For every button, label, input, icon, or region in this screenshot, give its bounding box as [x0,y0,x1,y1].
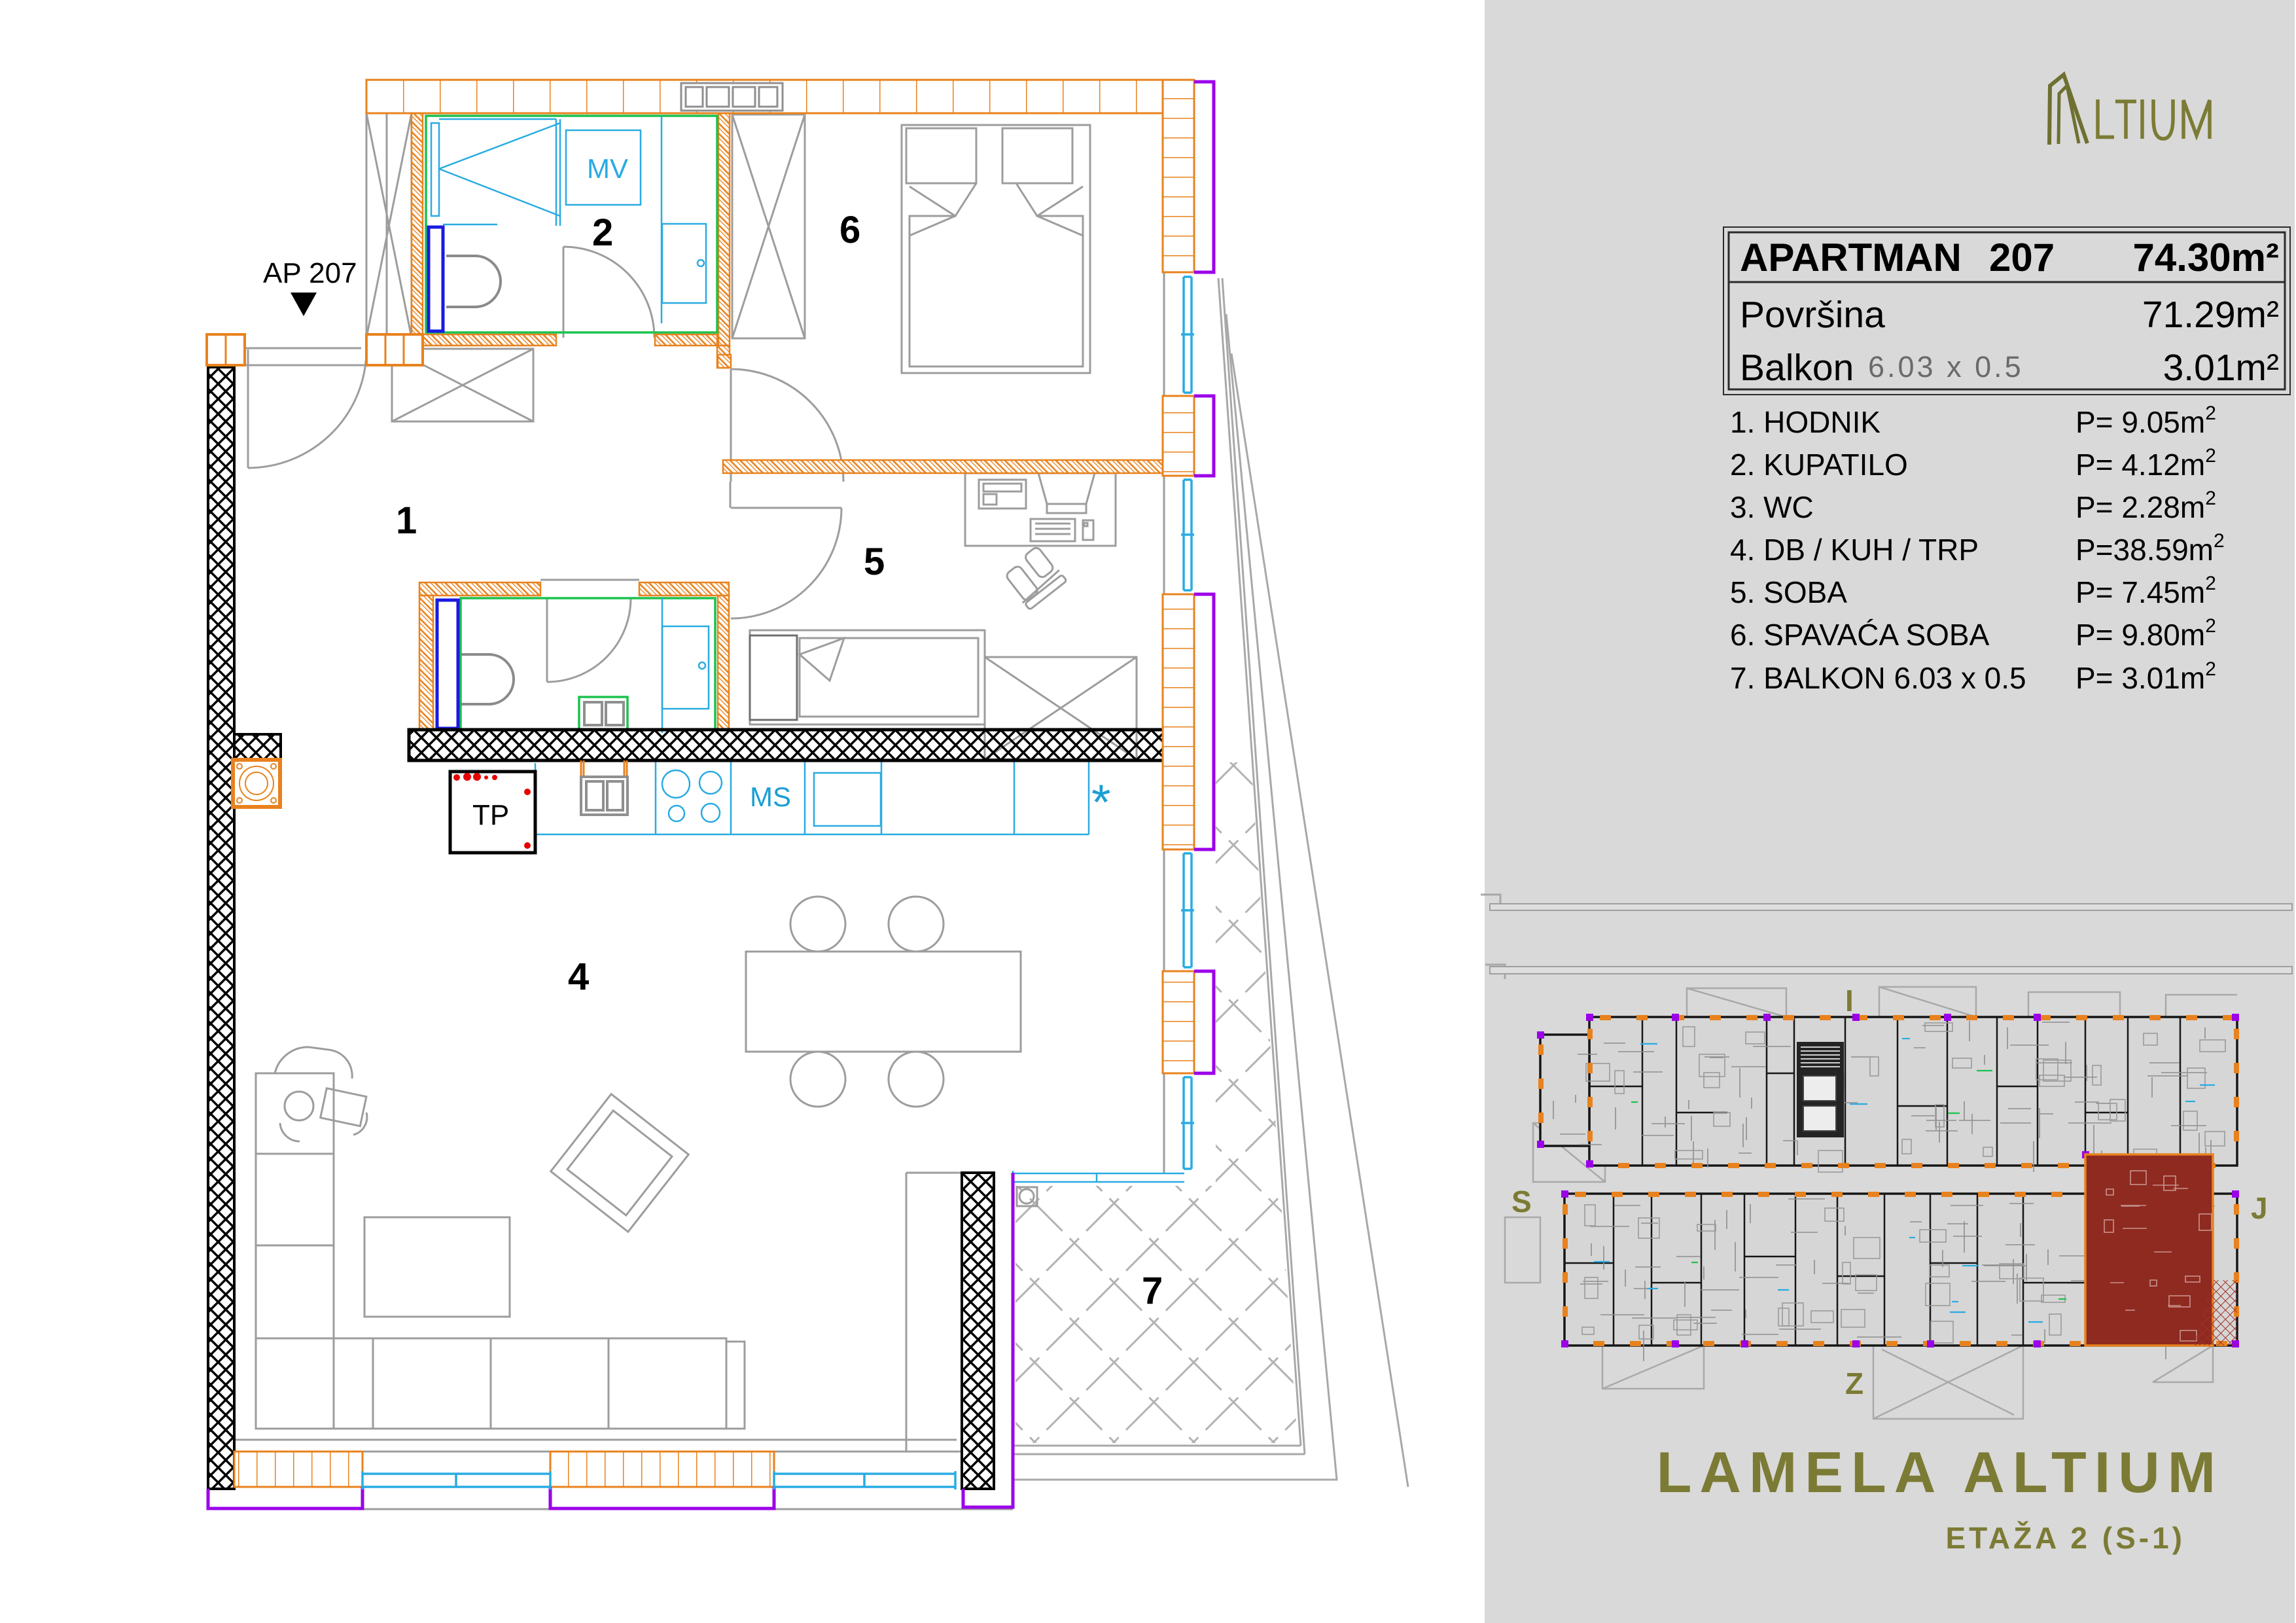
svg-text:P= 7.45m2: P= 7.45m2 [2075,573,2216,609]
svg-text:3.01m²: 3.01m² [2163,347,2279,389]
svg-text:MV: MV [587,153,628,184]
svg-text:2. KUPATILO: 2. KUPATILO [1730,448,1908,482]
svg-text:3. WC: 3. WC [1730,490,1814,524]
svg-text:7: 7 [1142,1270,1163,1312]
svg-text:1. HODNIK: 1. HODNIK [1730,405,1881,439]
svg-text:2: 2 [592,211,613,254]
svg-text:207: 207 [1989,236,2055,279]
svg-text:74.30m²: 74.30m² [2133,236,2279,279]
svg-text:4: 4 [568,955,589,998]
svg-text:6: 6 [839,209,860,251]
svg-text:Površina: Površina [1740,294,1885,336]
svg-text:P= 2.28m2: P= 2.28m2 [2075,488,2216,524]
svg-text:S: S [1511,1185,1532,1219]
svg-text:1: 1 [396,499,417,542]
svg-text:5. SOBA: 5. SOBA [1730,575,1847,609]
svg-text:LAMELA ALTIUM: LAMELA ALTIUM [1657,1440,2223,1505]
svg-text:4. DB / KUH / TRP: 4. DB / KUH / TRP [1730,533,1979,567]
svg-text:J: J [2251,1191,2268,1225]
svg-text:71.29m²: 71.29m² [2142,294,2279,336]
svg-text:P= 4.12m2: P= 4.12m2 [2075,445,2216,482]
svg-text:5: 5 [864,541,885,583]
svg-text:P= 3.01m2: P= 3.01m2 [2075,658,2216,695]
svg-text:APARTMAN: APARTMAN [1740,236,1962,279]
svg-text:Balkon: Balkon [1740,347,1854,389]
svg-text:AP 207: AP 207 [263,257,357,289]
svg-text:ETAŽA 2 (S-1): ETAŽA 2 (S-1) [1945,1521,2185,1555]
svg-text:TP: TP [472,799,509,831]
svg-text:I: I [1845,984,1854,1018]
svg-text:*: * [1091,775,1111,830]
svg-text:6. SPAVAĆA SOBA: 6. SPAVAĆA SOBA [1730,618,1990,652]
svg-text:6.03 x 0.5: 6.03 x 0.5 [1868,350,2024,383]
svg-text:MS: MS [750,781,791,812]
svg-text:Z: Z [1845,1366,1863,1400]
svg-text:P= 9.80m2: P= 9.80m2 [2075,615,2216,652]
svg-text:P=38.59m2: P=38.59m2 [2075,530,2225,567]
svg-text:7. BALKON 6.03 x 0.5: 7. BALKON 6.03 x 0.5 [1730,661,2026,695]
svg-text:P= 9.05m2: P= 9.05m2 [2075,402,2216,439]
